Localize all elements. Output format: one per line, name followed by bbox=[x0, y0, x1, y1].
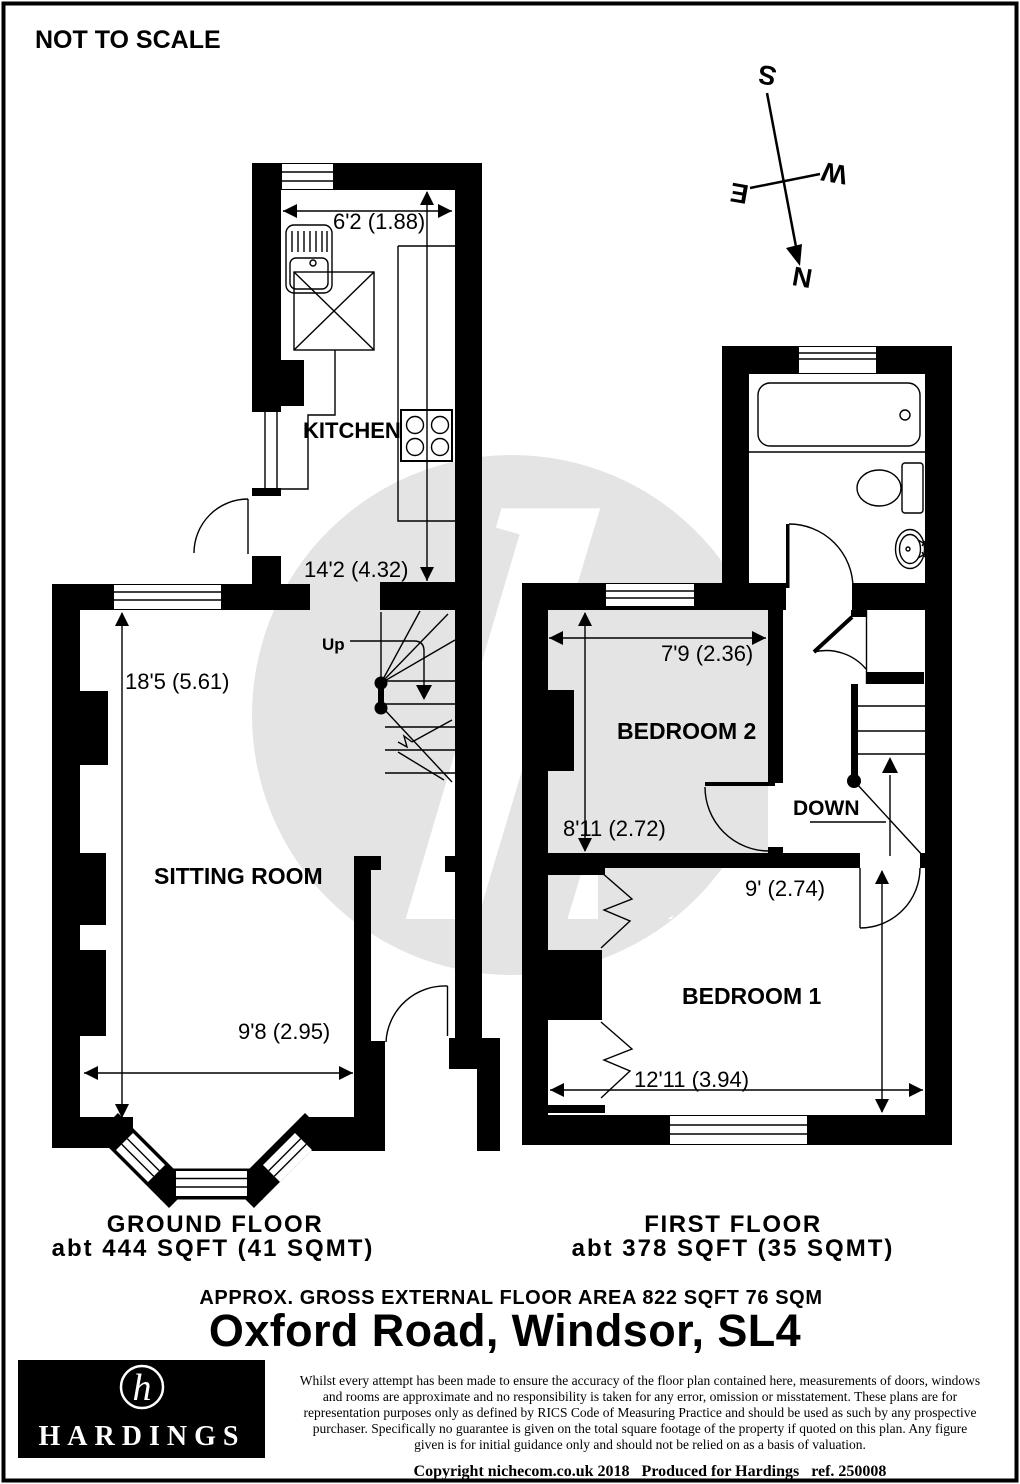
svg-text:HARDINGS: HARDINGS bbox=[39, 1421, 246, 1452]
svg-text:BEDROOM 2: BEDROOM 2 bbox=[617, 718, 756, 744]
svg-text:Oxford Road, Windsor, SL4: Oxford Road, Windsor, SL4 bbox=[209, 1305, 801, 1356]
svg-text:DOWN: DOWN bbox=[793, 797, 860, 820]
svg-text:6'2 (1.88): 6'2 (1.88) bbox=[333, 209, 425, 234]
svg-text:14'2 (4.32): 14'2 (4.32) bbox=[304, 557, 409, 582]
svg-text:Whilst every attempt has been: Whilst every attempt has been made to en… bbox=[300, 1373, 980, 1388]
svg-text:BEDROOM 1: BEDROOM 1 bbox=[682, 983, 822, 1009]
svg-text:SITTING ROOM: SITTING ROOM bbox=[154, 863, 323, 889]
svg-text:FIRST FLOOR: FIRST FLOOR bbox=[644, 1211, 822, 1238]
svg-text:representation purposes only a: representation purposes only as defined … bbox=[304, 1405, 977, 1420]
svg-text:9' (2.74): 9' (2.74) bbox=[745, 876, 825, 901]
svg-text:abt 444 SQFT (41 SQMT): abt 444 SQFT (41 SQMT) bbox=[52, 1235, 375, 1262]
svg-text:18'5 (5.61): 18'5 (5.61) bbox=[125, 669, 230, 694]
svg-text:and rooms are approximate and: and rooms are approximate and no respons… bbox=[323, 1389, 958, 1404]
svg-text:8'11 (2.72): 8'11 (2.72) bbox=[563, 816, 666, 841]
svg-text:GROUND FLOOR: GROUND FLOOR bbox=[107, 1211, 324, 1238]
svg-text:Up: Up bbox=[322, 635, 345, 654]
svg-text:purchaser. Specifically no gu: purchaser. Specifically no guarantee is … bbox=[313, 1421, 968, 1436]
svg-text:12'11 (3.94): 12'11 (3.94) bbox=[634, 1067, 749, 1092]
svg-text:Copyright nichecom.co.uk 2018: Copyright nichecom.co.uk 2018 Produced f… bbox=[414, 1463, 887, 1480]
svg-text:abt 378 SQFT (35 SQMT): abt 378 SQFT (35 SQMT) bbox=[572, 1235, 895, 1262]
svg-text:NOT TO SCALE: NOT TO SCALE bbox=[35, 26, 221, 54]
svg-text:9'8 (2.95): 9'8 (2.95) bbox=[238, 1019, 330, 1044]
svg-text:given is for initial guidance: given is for initial guidance only and s… bbox=[414, 1437, 866, 1452]
svg-text:7'9 (2.36): 7'9 (2.36) bbox=[661, 641, 753, 666]
svg-text:KITCHEN: KITCHEN bbox=[303, 418, 401, 443]
svg-text:h: h bbox=[133, 1367, 152, 1409]
